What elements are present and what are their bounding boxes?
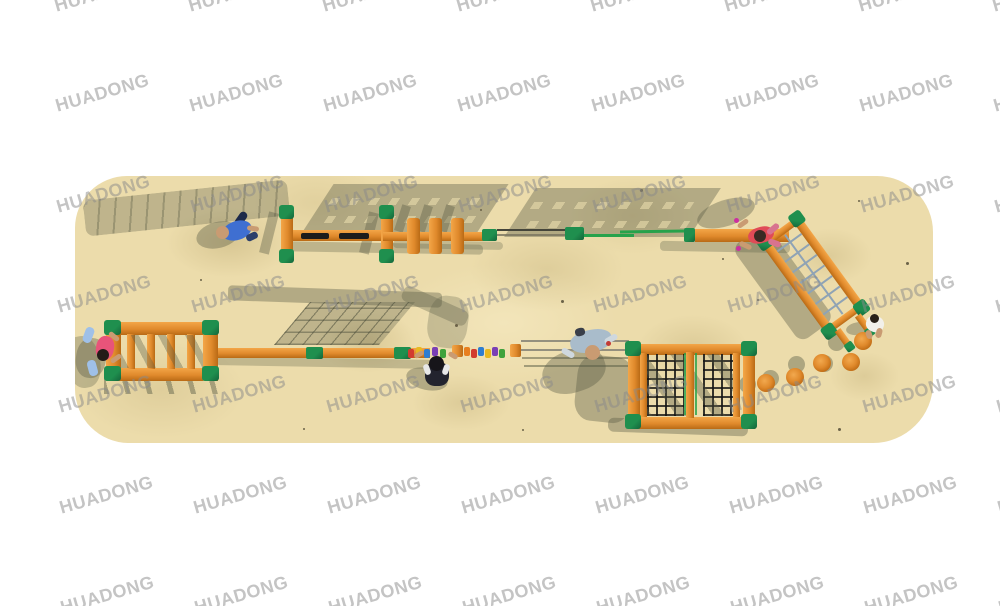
green-cap <box>625 341 641 356</box>
watermark-text: HUADONG <box>192 572 291 606</box>
watermark-text: HUADONG <box>996 572 1000 606</box>
watermark-text: HUADONG <box>861 471 960 518</box>
pebble <box>200 279 202 281</box>
figure-head <box>585 345 600 360</box>
bridge-grip <box>408 349 414 358</box>
watermark-text: HUADONG <box>995 471 1000 518</box>
watermark-text: HUADONG <box>455 70 554 117</box>
green-cap <box>202 366 219 381</box>
figure-leg <box>875 327 883 338</box>
bridge-grip <box>485 349 491 358</box>
watermark-text: HUADONG <box>862 572 961 606</box>
watermark-text: HUADONG <box>722 0 821 17</box>
green-connector <box>482 229 497 241</box>
watermark-text: HUADONG <box>589 70 688 117</box>
bridge-grip <box>499 349 505 358</box>
bridge-grip <box>471 349 477 358</box>
bridge-grip <box>424 349 430 358</box>
watermark-text: HUADONG <box>186 0 285 17</box>
grip-pad <box>301 233 329 239</box>
figure-hand <box>736 246 741 251</box>
watermark-text: HUADONG <box>459 471 558 518</box>
pebble <box>838 428 841 431</box>
watermark-text: HUADONG <box>990 0 1000 17</box>
stump <box>813 354 831 372</box>
watermark-text: HUADONG <box>52 0 151 17</box>
pebble <box>303 428 305 430</box>
pebble <box>455 324 458 327</box>
playground-product-render: HUADONGHUADONGHUADONGHUADONGHUADONGHUADO… <box>0 0 1000 606</box>
watermark-text: HUADONG <box>994 371 1000 418</box>
watermark-text: HUADONG <box>326 572 425 606</box>
figure-hand <box>734 218 739 223</box>
figure-head <box>216 226 229 239</box>
green-cap <box>379 249 394 263</box>
net-box-rail <box>628 417 755 429</box>
green-connector <box>565 227 584 240</box>
watermark-text: HUADONG <box>58 572 157 606</box>
shadow-ladder-b-rungs <box>526 221 691 228</box>
watermark-text: HUADONG <box>191 471 290 518</box>
watermark-text: HUADONG <box>727 471 826 518</box>
green-cap <box>202 320 219 335</box>
pebble <box>561 300 564 303</box>
watermark-text: HUADONG <box>187 70 286 117</box>
bridge-grip <box>492 347 498 356</box>
bridge-post <box>510 344 521 357</box>
stump <box>842 353 860 371</box>
green-cap <box>279 205 294 219</box>
green-connector <box>306 347 323 359</box>
pebble <box>722 258 724 260</box>
green-connector <box>684 228 695 242</box>
grip-pad <box>339 233 369 239</box>
green-cap <box>279 249 294 263</box>
rope-line <box>497 234 567 236</box>
watermark-text: HUADONG <box>856 0 955 17</box>
figure-head <box>754 230 766 242</box>
watermark-text: HUADONG <box>454 0 553 17</box>
watermark-text: HUADONG <box>728 572 827 606</box>
watermark-text: HUADONG <box>992 170 1000 217</box>
green-rope <box>695 353 697 415</box>
watermark-text: HUADONG <box>460 572 559 606</box>
pebble <box>906 262 909 265</box>
watermark-text: HUADONG <box>723 70 822 117</box>
rope-line <box>497 229 567 231</box>
green-cap <box>625 414 641 429</box>
green-rope <box>584 234 634 237</box>
monkeybars-inner-shadow <box>121 335 203 368</box>
green-cap <box>379 205 394 219</box>
paddle-post <box>407 218 420 254</box>
watermark-text: HUADONG <box>53 70 152 117</box>
watermark-text: HUADONG <box>57 471 156 518</box>
paddle-post <box>451 218 464 254</box>
figure-knee-pad <box>606 341 611 346</box>
bridge-grip <box>464 347 470 356</box>
watermark-text: HUADONG <box>320 0 419 17</box>
bridge-grip <box>478 347 484 356</box>
watermark-text: HUADONG <box>321 70 420 117</box>
watermark-text: HUADONG <box>593 471 692 518</box>
watermark-text: HUADONG <box>594 572 693 606</box>
watermark-text: HUADONG <box>325 471 424 518</box>
watermark-text: HUADONG <box>991 70 1000 117</box>
watermark-text: HUADONG <box>588 0 687 17</box>
watermark-text: HUADONG <box>857 70 956 117</box>
figure-head <box>429 356 444 371</box>
green-cap <box>741 341 757 356</box>
pebble <box>522 429 524 431</box>
green-cap <box>741 414 757 429</box>
watermark-text: HUADONG <box>993 271 1000 318</box>
paddle-post <box>429 218 442 254</box>
bridge-grip <box>432 347 438 356</box>
figure-head <box>97 349 109 361</box>
